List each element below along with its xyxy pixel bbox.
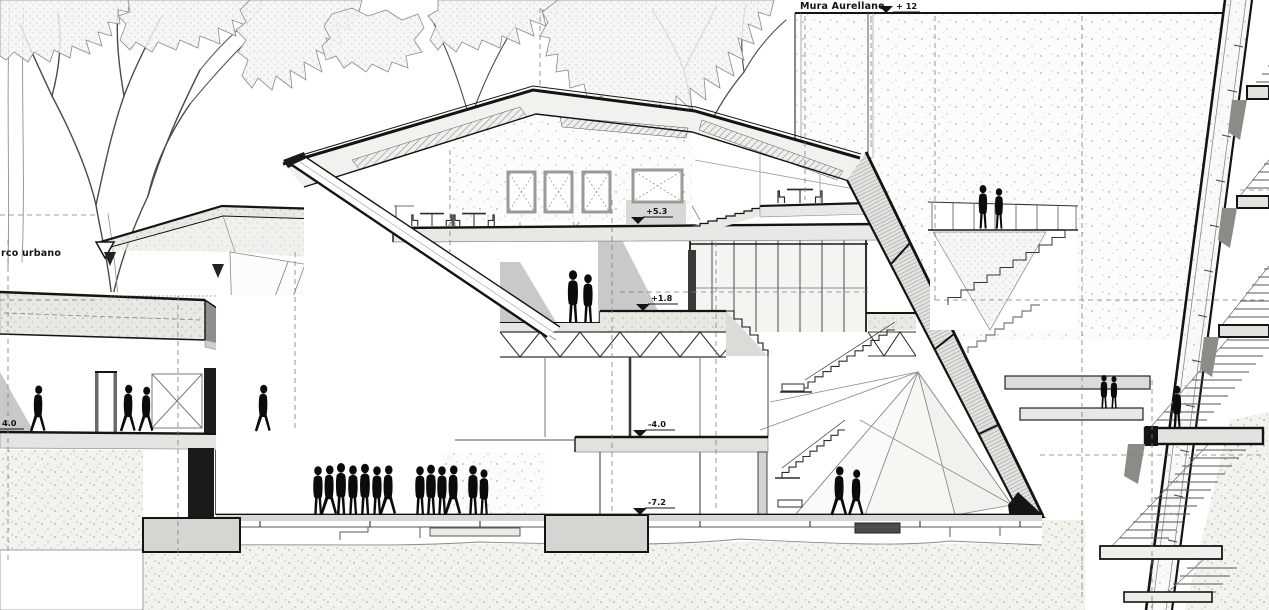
braced-panel bbox=[152, 374, 202, 428]
bench bbox=[782, 384, 804, 391]
park-name-label: rco urbano bbox=[1, 248, 61, 259]
glass-door bbox=[545, 172, 572, 212]
level-value: -7.2 bbox=[648, 497, 666, 507]
level-value: +1.8 bbox=[651, 293, 673, 303]
architectural-section-canvas: Mura Aurellane rco urbano + 12 +5.3 +1.8… bbox=[0, 0, 1269, 610]
footing bbox=[545, 515, 648, 552]
section-drawing: Mura Aurellane rco urbano + 12 +5.3 +1.8… bbox=[0, 0, 1269, 610]
walkway-slabs bbox=[1005, 376, 1150, 420]
level-value: +5.3 bbox=[646, 206, 668, 216]
canopy-bracket-icon bbox=[212, 264, 224, 278]
footing bbox=[143, 518, 240, 552]
wall-name-label: Mura Aurellane bbox=[800, 1, 885, 12]
level-value: -4.0 bbox=[648, 419, 666, 429]
level-value: 4.0 bbox=[2, 418, 17, 428]
deck-pier bbox=[758, 452, 767, 515]
excavation-trench bbox=[0, 550, 143, 610]
glass-door bbox=[583, 172, 610, 212]
bench bbox=[778, 500, 802, 507]
level-marker-wall-top: + 12 bbox=[879, 1, 920, 13]
glass-door bbox=[508, 172, 535, 212]
foundation-pier bbox=[188, 448, 214, 518]
entry-platform bbox=[600, 311, 726, 332]
lower-deck bbox=[575, 437, 768, 452]
level-value: + 12 bbox=[896, 1, 917, 11]
wall-pier bbox=[204, 368, 218, 435]
